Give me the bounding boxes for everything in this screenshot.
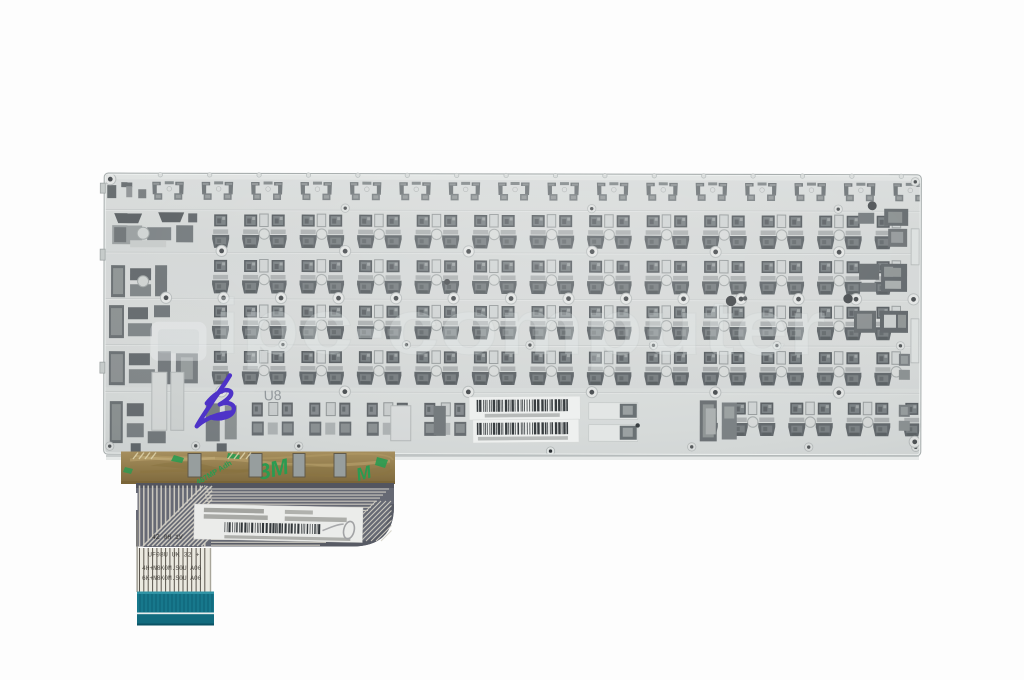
- svg-text:UF08U UK 32 +: UF08U UK 32 +: [148, 552, 199, 559]
- svg-text:ipc-computer: ipc-computer: [214, 282, 826, 371]
- svg-text:4H+N8K0M.S0U A06: 4H+N8K0M.S0U A06: [142, 565, 202, 572]
- svg-text:U8: U8: [263, 387, 282, 404]
- svg-text:4Z 0H 1V: 4Z 0H 1V: [152, 534, 183, 541]
- svg-text:6K+N8K0M.S0U A06: 6K+N8K0M.S0U A06: [142, 575, 202, 582]
